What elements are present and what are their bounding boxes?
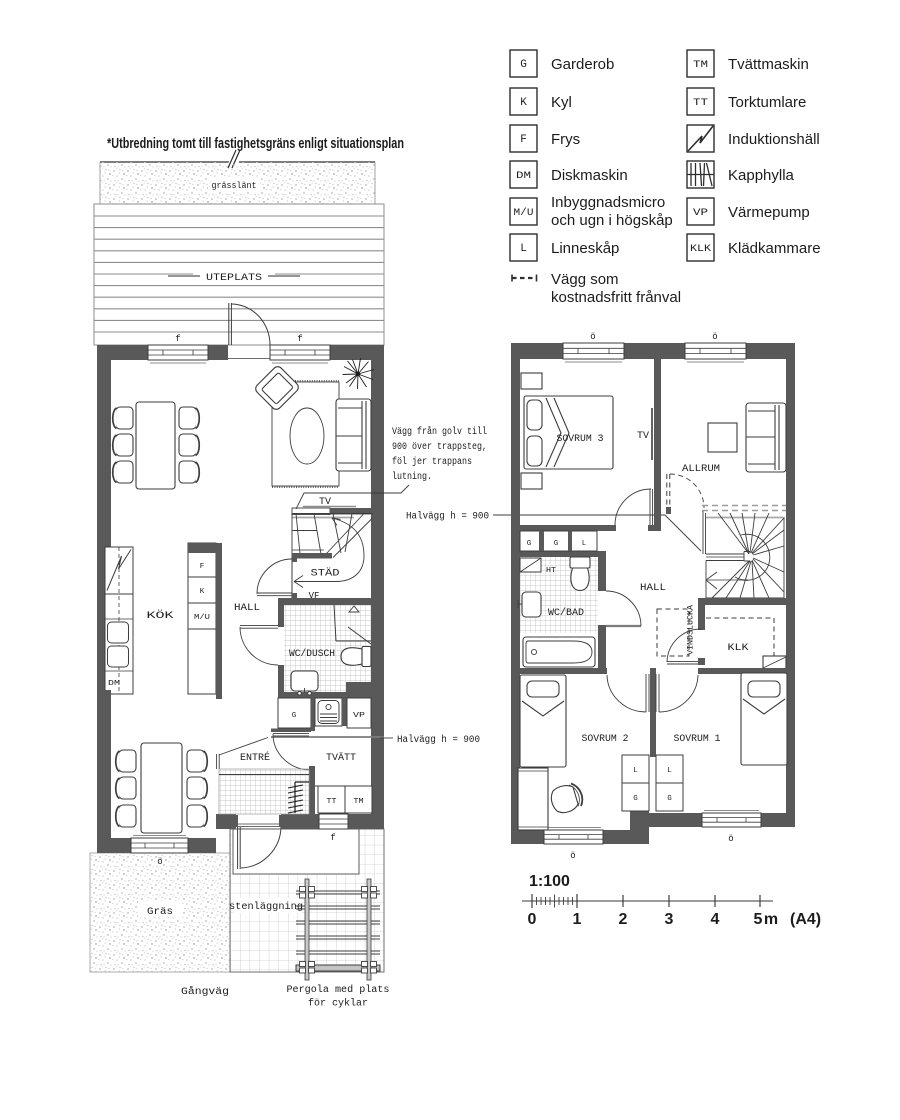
svg-text:Induktionshäll: Induktionshäll — [728, 131, 820, 148]
svg-text:Gräs: Gräs — [147, 906, 173, 918]
svg-text:ö: ö — [590, 332, 595, 342]
svg-text:G: G — [292, 712, 297, 720]
svg-text:G: G — [520, 59, 527, 71]
svg-text:Vägg som: Vägg som — [551, 271, 619, 288]
svg-text:ö: ö — [157, 857, 162, 867]
svg-text:5: 5 — [754, 911, 763, 928]
svg-text:SOVRUM 2: SOVRUM 2 — [582, 734, 629, 745]
svg-text:K: K — [520, 97, 527, 109]
svg-text:WC/BAD: WC/BAD — [548, 607, 584, 619]
svg-text:SOVRUM 3: SOVRUM 3 — [557, 434, 604, 445]
svg-text:Kyl: Kyl — [551, 94, 572, 111]
svg-text:KÖK: KÖK — [147, 609, 174, 622]
svg-text:TVÄTT: TVÄTT — [326, 751, 356, 764]
svg-text:KLK: KLK — [690, 244, 711, 255]
svg-text:Tvättmaskin: Tvättmaskin — [728, 56, 809, 73]
svg-text:G: G — [554, 540, 559, 548]
svg-text:TT: TT — [327, 798, 338, 806]
svg-text:Vägg från golv till: Vägg från golv till — [392, 425, 487, 438]
svg-text:L: L — [520, 243, 527, 255]
svg-text:Värmepump: Värmepump — [728, 204, 810, 221]
svg-text:L: L — [667, 767, 672, 775]
svg-text:Halvägg h = 900: Halvägg h = 900 — [406, 511, 489, 523]
svg-text:Gångväg: Gångväg — [181, 985, 229, 998]
svg-text:Frys: Frys — [551, 131, 580, 148]
svg-text:ö: ö — [712, 332, 717, 342]
svg-text:F: F — [200, 563, 205, 571]
svg-text:Torktumlare: Torktumlare — [728, 94, 806, 111]
svg-text:F: F — [520, 134, 527, 146]
svg-text:HALL: HALL — [640, 583, 666, 594]
svg-text:TT: TT — [693, 98, 708, 109]
svg-text:grässlänt: grässlänt — [212, 180, 257, 191]
svg-text:1:100: 1:100 — [529, 873, 570, 890]
svg-text:G: G — [527, 540, 532, 548]
svg-text:M/U: M/U — [514, 207, 534, 219]
svg-text:0: 0 — [528, 911, 537, 928]
svg-text:ö: ö — [570, 851, 575, 861]
svg-text:stenläggning: stenläggning — [229, 901, 303, 913]
svg-text:VP: VP — [353, 712, 366, 720]
svg-text:SOVRUM 1: SOVRUM 1 — [674, 734, 721, 745]
svg-text:DM: DM — [516, 171, 531, 182]
svg-text:900 över trappsteg,: 900 över trappsteg, — [392, 441, 487, 453]
svg-text:f: f — [330, 833, 335, 843]
svg-text:kostnadsfritt frånval: kostnadsfritt frånval — [551, 289, 681, 306]
svg-text:2: 2 — [619, 911, 628, 928]
svg-text:KLK: KLK — [728, 643, 749, 654]
svg-text:1: 1 — [573, 911, 582, 928]
svg-text:UTEPLATS: UTEPLATS — [206, 273, 262, 284]
svg-text:lutning.: lutning. — [392, 471, 432, 483]
svg-text:Diskmaskin: Diskmaskin — [551, 167, 628, 184]
svg-text:Garderob: Garderob — [551, 56, 614, 73]
svg-text:Halvägg h = 900: Halvägg h = 900 — [397, 734, 480, 746]
svg-text:DM: DM — [108, 680, 121, 688]
svg-text:G: G — [667, 795, 672, 803]
svg-text:HT: HT — [546, 567, 557, 575]
svg-text:M/U: M/U — [194, 614, 210, 622]
svg-text:och ugn i högskåp: och ugn i högskåp — [551, 212, 673, 229]
svg-text:f: f — [297, 334, 302, 344]
svg-text:ENTRÉ: ENTRÉ — [240, 750, 270, 764]
svg-text:3: 3 — [665, 911, 674, 928]
svg-text:TM: TM — [693, 60, 708, 71]
svg-text:Kapphylla: Kapphylla — [728, 167, 795, 184]
svg-text:Inbyggnadsmicro: Inbyggnadsmicro — [551, 194, 665, 211]
svg-text:för cyklar: för cyklar — [308, 998, 368, 1010]
svg-text:m: m — [764, 911, 778, 928]
svg-text:HALL: HALL — [234, 603, 260, 614]
svg-text:ö: ö — [728, 834, 733, 844]
svg-text:L: L — [633, 767, 638, 775]
svg-text:föl jer trappans: föl jer trappans — [392, 456, 472, 468]
svg-text:Klädkammare: Klädkammare — [728, 240, 821, 257]
svg-text:G: G — [633, 795, 638, 803]
svg-text:Linneskåp: Linneskåp — [551, 240, 619, 257]
svg-text:(A4): (A4) — [790, 911, 821, 928]
svg-text:ALLRUM: ALLRUM — [682, 464, 720, 475]
svg-text:VP: VP — [693, 208, 708, 219]
svg-text:L: L — [582, 540, 587, 548]
svg-text:K: K — [200, 588, 205, 596]
svg-text:*Utbredning tomt till fastighe: *Utbredning tomt till fastighetsgräns en… — [107, 135, 404, 152]
svg-text:TM: TM — [354, 798, 365, 806]
svg-text:Pergola med plats: Pergola med plats — [287, 984, 390, 996]
svg-text:f: f — [175, 334, 180, 344]
svg-text:TV: TV — [637, 431, 649, 442]
svg-text:WC/DUSCH: WC/DUSCH — [289, 648, 335, 660]
svg-text:STÄD: STÄD — [311, 567, 340, 580]
svg-text:4: 4 — [711, 911, 720, 928]
